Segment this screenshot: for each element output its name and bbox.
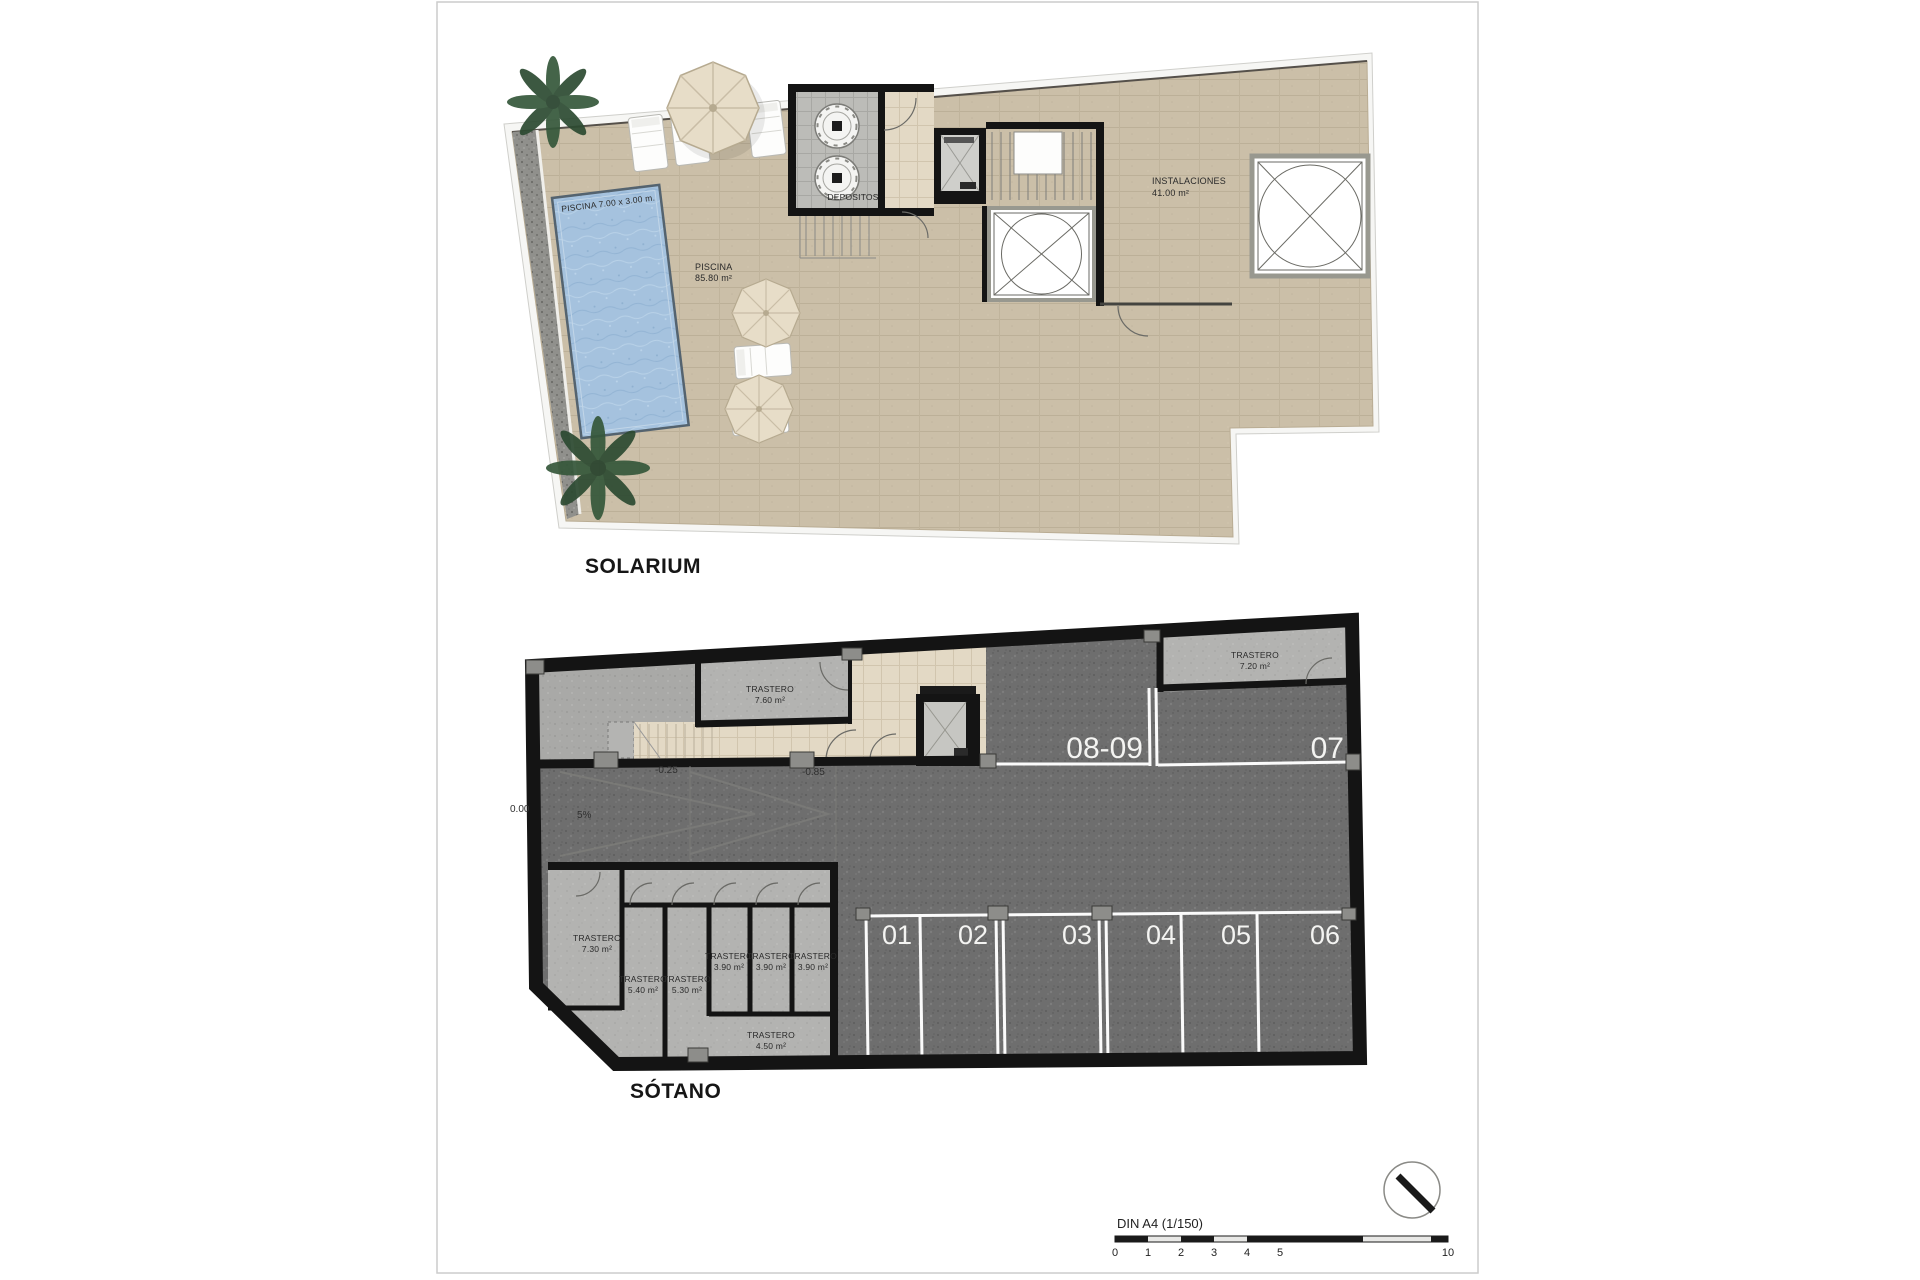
floor-plan-drawing: PISCINA 7.00 x 3.00 m. PISCINA 85.80 m² (0, 0, 1920, 1280)
stair-landing-room (885, 92, 934, 208)
storage-room-720-area: 7.20 m² (1240, 661, 1270, 671)
parasol-2 (732, 279, 800, 347)
level-mid: -0.25 (655, 765, 678, 776)
storage-room-390b-area: 3.90 m² (756, 962, 786, 972)
storage-room-730-label: TRASTERO (573, 933, 621, 943)
instalaciones-label: INSTALACIONES (1152, 176, 1226, 186)
parasol-3 (725, 375, 793, 443)
palm-plant-bottom (546, 416, 650, 520)
sotano-plan: TRASTERO 7.60 m² TRASTERO 7.20 m² (510, 620, 1360, 1103)
elevator-basement (916, 686, 980, 766)
sotano-caption: SÓTANO (630, 1079, 721, 1103)
pool-name-label: PISCINA (695, 262, 732, 272)
pool-area-label: 85.80 m² (695, 273, 732, 283)
storage-room-390b-label: TRASTERO (747, 951, 795, 961)
parking-spot-05-label: 05 (1221, 920, 1251, 950)
parking-spot-06-label: 06 (1310, 920, 1340, 950)
scale-tick-2: 2 (1178, 1247, 1184, 1259)
scale-tick-0: 0 (1112, 1247, 1118, 1259)
level-lower: -0.85 (802, 767, 825, 778)
storage-room-530-label: TRASTERO (663, 974, 711, 984)
storage-room-730-area: 7.30 m² (582, 944, 612, 954)
sun-lounger-1 (628, 114, 668, 172)
ramp-slope-label: 5% (577, 810, 592, 821)
parking-spot-02-label: 02 (958, 920, 988, 950)
parking-spot-0809-label: 08-09 (1066, 732, 1143, 765)
scale-tick-3: 3 (1211, 1247, 1217, 1259)
storage-room-390c-label: TRASTERO (789, 951, 837, 961)
floor-plan-sheet-page: PISCINA 7.00 x 3.00 m. PISCINA 85.80 m² (0, 0, 1920, 1280)
depositos-room: DEPOSITOS (788, 84, 934, 216)
instalaciones-area: 41.00 m² (1152, 188, 1189, 198)
north-arrow (1384, 1162, 1440, 1218)
parking-spot-03-label: 03 (1062, 920, 1092, 950)
storage-room-760-area: 7.60 m² (755, 695, 785, 705)
sun-lounger-4 (734, 343, 792, 379)
scale-tick-1: 1 (1145, 1247, 1151, 1259)
parking-spot-07-label: 07 (1311, 732, 1344, 765)
parking-spot-04-label: 04 (1146, 920, 1176, 950)
scale-tick-5: 5 (1277, 1247, 1283, 1259)
elevator-top (934, 128, 986, 204)
storage-room-390a-label: TRASTERO (705, 951, 753, 961)
parking-spot-01-label: 01 (882, 920, 912, 950)
skylight-2 (1252, 156, 1368, 276)
storage-room-540-area: 5.40 m² (628, 985, 658, 995)
storage-room-720-label: TRASTERO (1231, 650, 1279, 660)
basement-stairs (634, 722, 858, 760)
palm-plant-top (507, 56, 599, 148)
scale-tick-10: 10 (1442, 1247, 1454, 1259)
storage-room-390c-area: 3.90 m² (798, 962, 828, 972)
storage-room-450-area: 4.50 m² (756, 1041, 786, 1051)
storage-room-390a-area: 3.90 m² (714, 962, 744, 972)
skylight-1 (982, 206, 1102, 302)
water-tank-1 (815, 104, 859, 148)
level-street: 0.00 (510, 804, 530, 815)
scale-title: DIN A4 (1/150) (1117, 1216, 1203, 1231)
storage-room-530-area: 5.30 m² (672, 985, 702, 995)
depositos-label: DEPOSITOS (827, 192, 878, 202)
storage-room-540-label: TRASTERO (619, 974, 667, 984)
storage-room-760-label: TRASTERO (746, 684, 794, 694)
storage-room-450-label: TRASTERO (747, 1030, 795, 1040)
solarium-caption: SOLARIUM (585, 555, 701, 578)
scale-tick-4: 4 (1244, 1247, 1250, 1259)
